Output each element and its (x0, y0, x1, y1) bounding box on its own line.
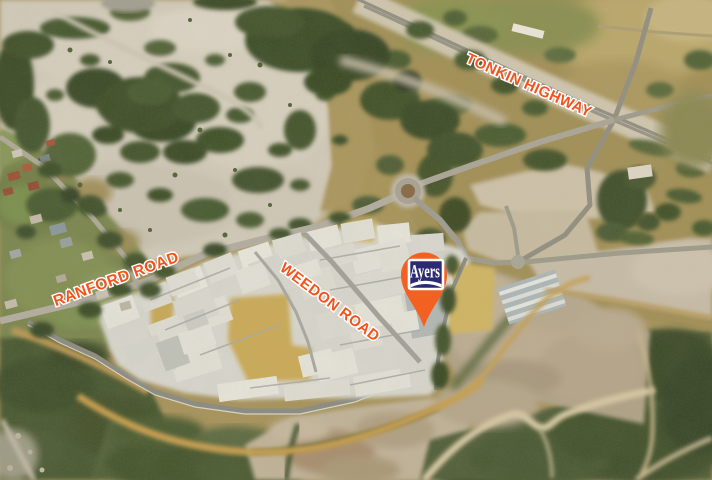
svg-text:Ayers: Ayers (410, 262, 440, 283)
